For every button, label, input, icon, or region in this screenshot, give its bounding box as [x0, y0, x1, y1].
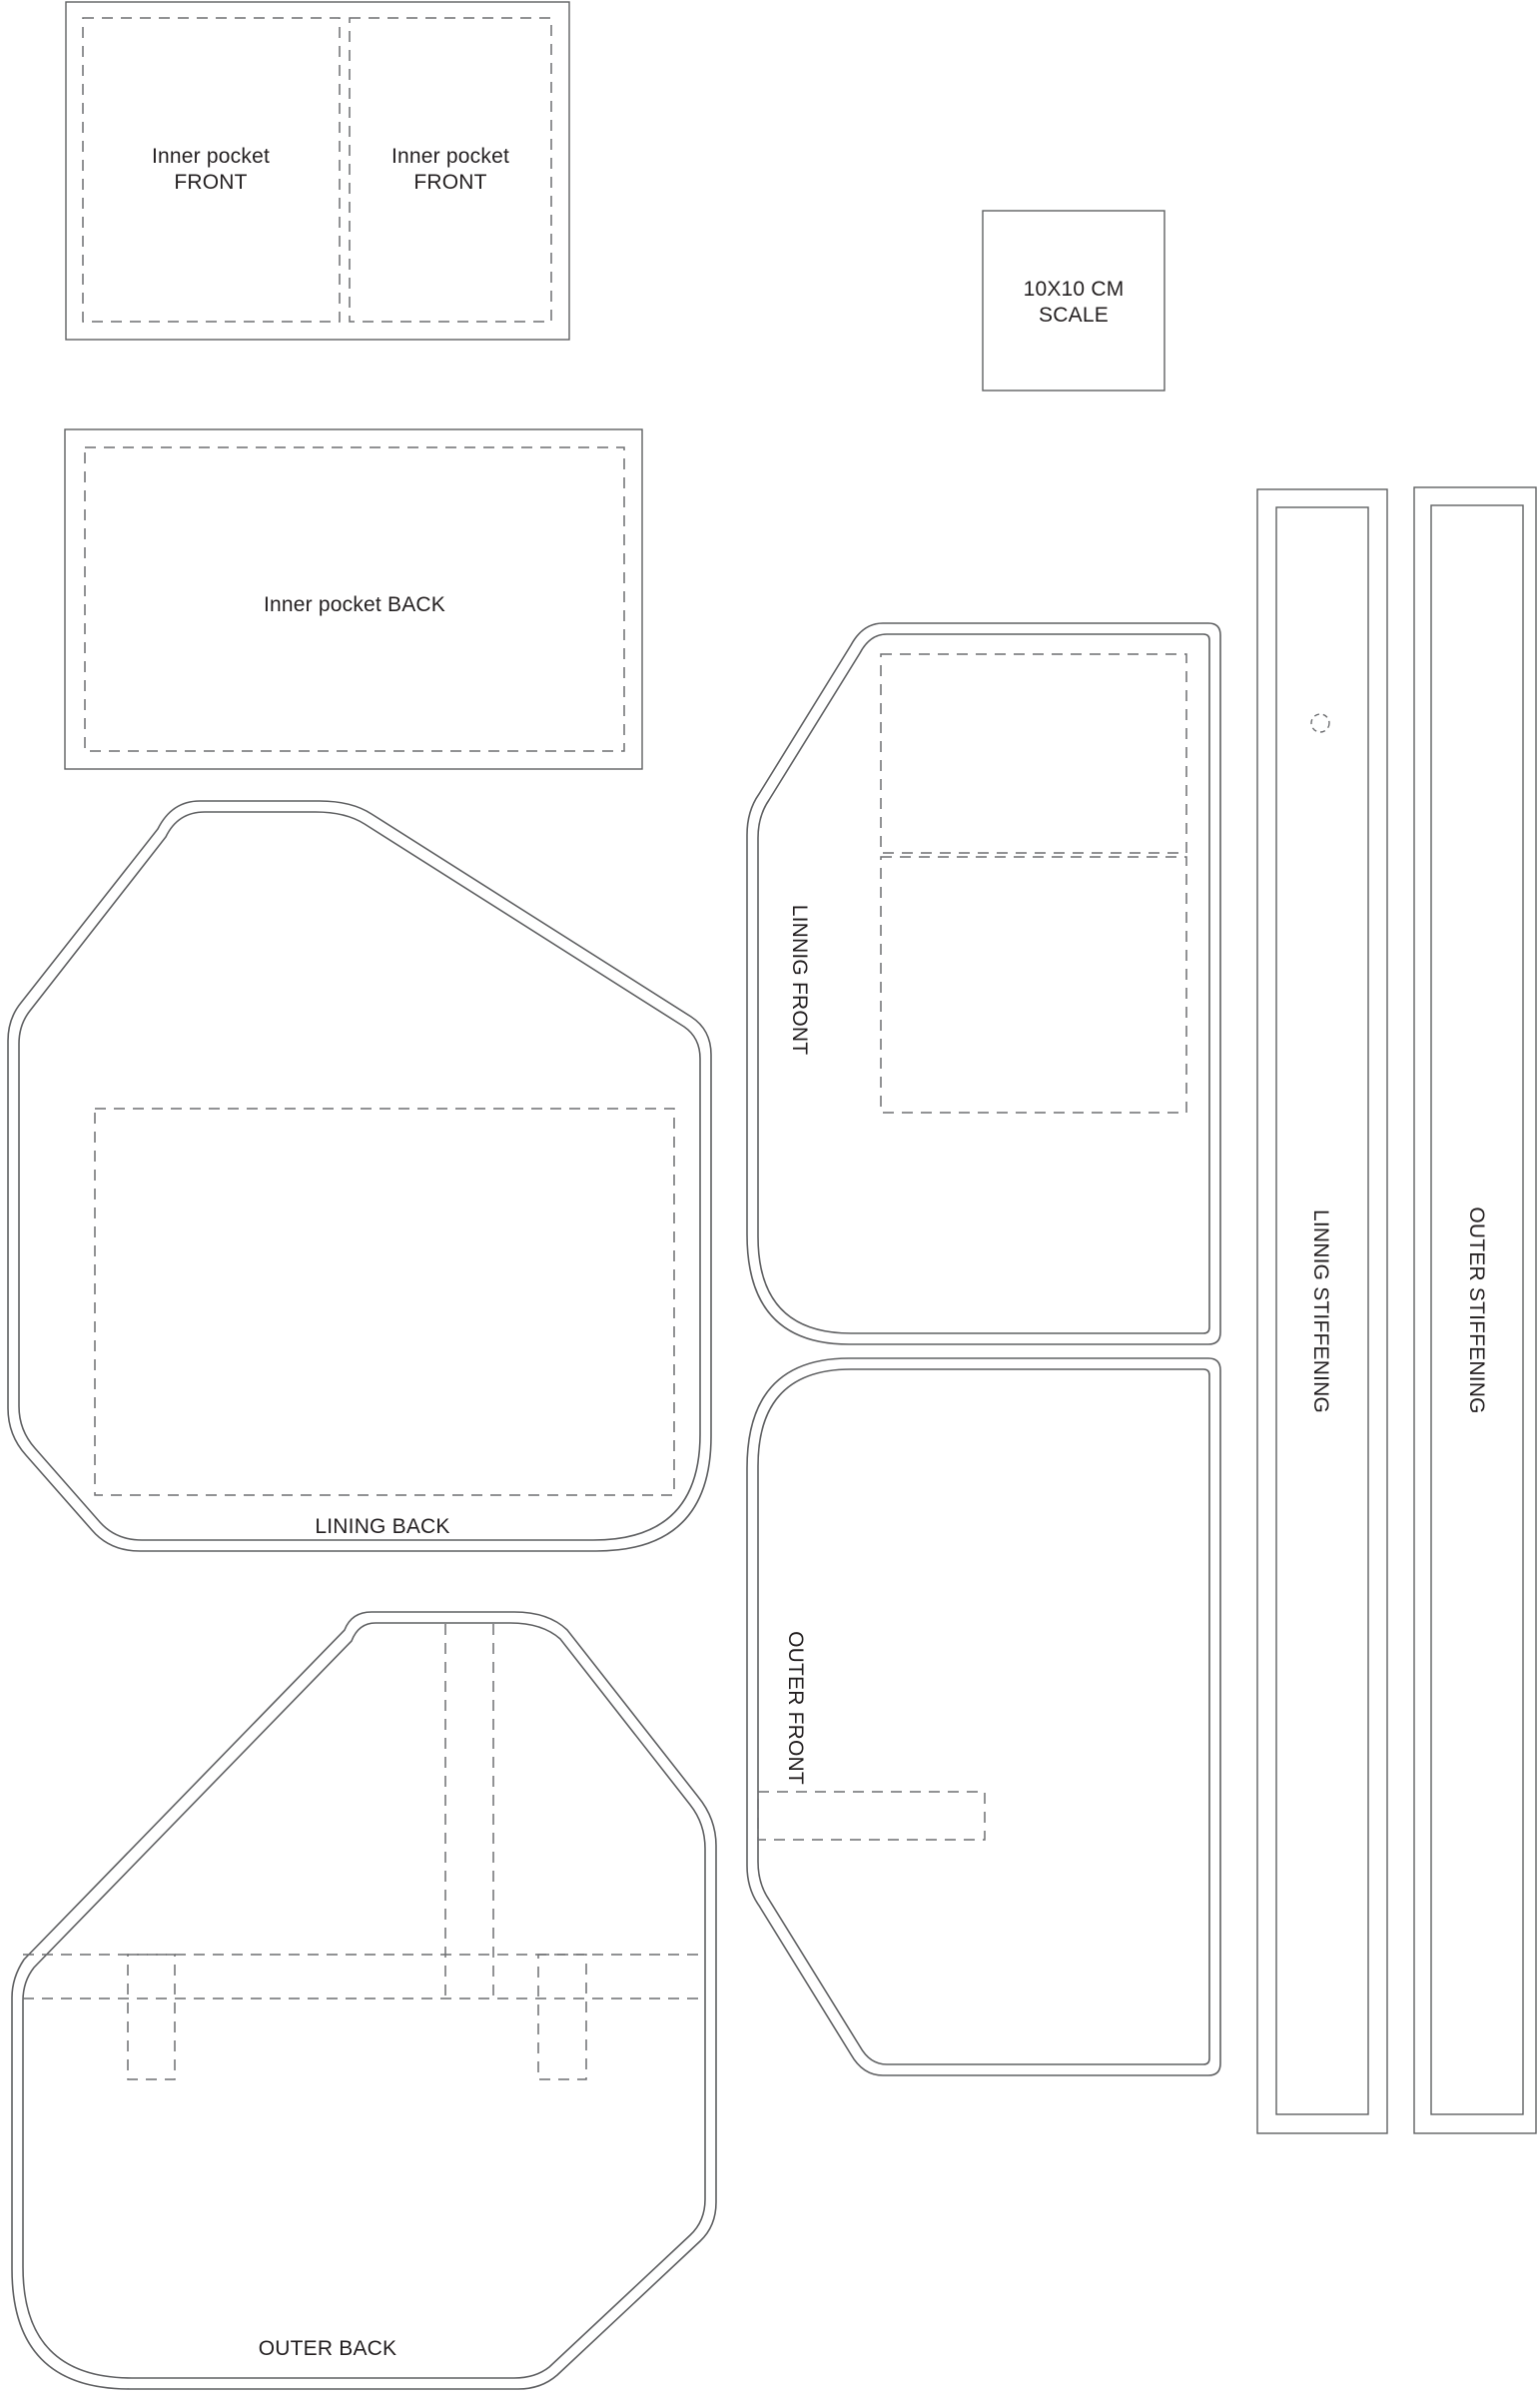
linnig-front-label: LINNIG FRONT [786, 905, 812, 1056]
outer-stiffening-label: OUTER STIFFENING [1463, 1206, 1489, 1413]
inner-pocket-front-left-label: Inner pocket FRONT [152, 144, 270, 196]
pattern-shapes [0, 0, 1540, 2397]
lining-back-piece [8, 801, 711, 1551]
lining-back-label: LINING BACK [315, 1514, 449, 1540]
outer-front-piece [747, 1358, 1220, 2075]
linnig-stiffening-label: LINNIG STIFFENING [1307, 1209, 1333, 1413]
inner-pocket-front-right-label: Inner pocket FRONT [391, 144, 509, 196]
inner-pocket-back-label: Inner pocket BACK [264, 592, 445, 618]
scale-box-label: 10X10 CM SCALE [1024, 277, 1125, 329]
pattern-sheet: Inner pocket FRONT Inner pocket FRONT 10… [0, 0, 1540, 2397]
outer-back-piece [12, 1612, 716, 2389]
outer-front-label: OUTER FRONT [782, 1631, 808, 1785]
outer-back-label: OUTER BACK [259, 2336, 397, 2362]
linnig-front-piece [747, 623, 1220, 1344]
rivet-hole-mark [1311, 714, 1329, 732]
